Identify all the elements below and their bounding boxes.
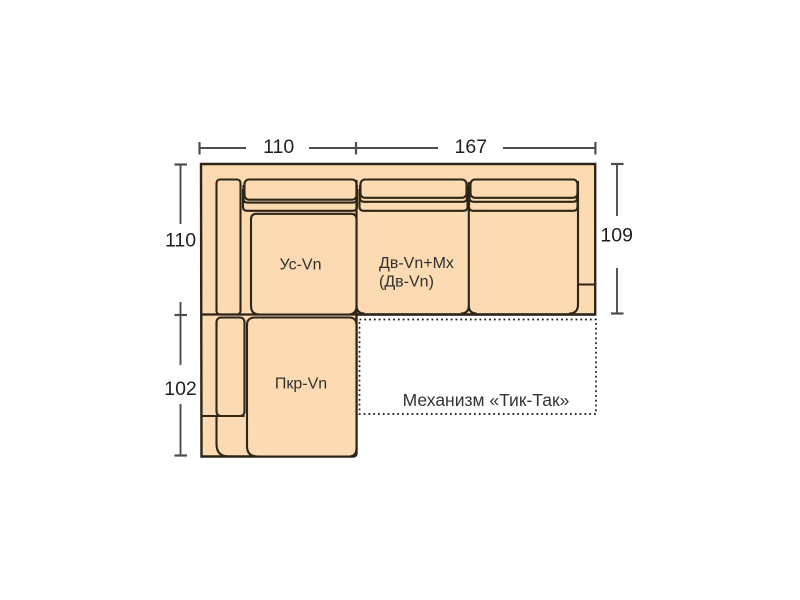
svg-text:(Дв-Vn): (Дв-Vn) <box>379 274 434 291</box>
svg-text:102: 102 <box>164 378 197 400</box>
svg-text:Пкр-Vn: Пкр-Vn <box>275 376 327 393</box>
svg-text:110: 110 <box>165 230 196 252</box>
svg-text:110: 110 <box>263 136 294 158</box>
svg-text:Механизм «Тик-Так»: Механизм «Тик-Так» <box>403 390 570 410</box>
svg-text:167: 167 <box>455 136 488 158</box>
svg-text:Ус-Vn: Ус-Vn <box>280 257 322 274</box>
svg-text:109: 109 <box>600 225 633 247</box>
svg-text:Дв-Vn+Мх: Дв-Vn+Мх <box>379 255 454 272</box>
